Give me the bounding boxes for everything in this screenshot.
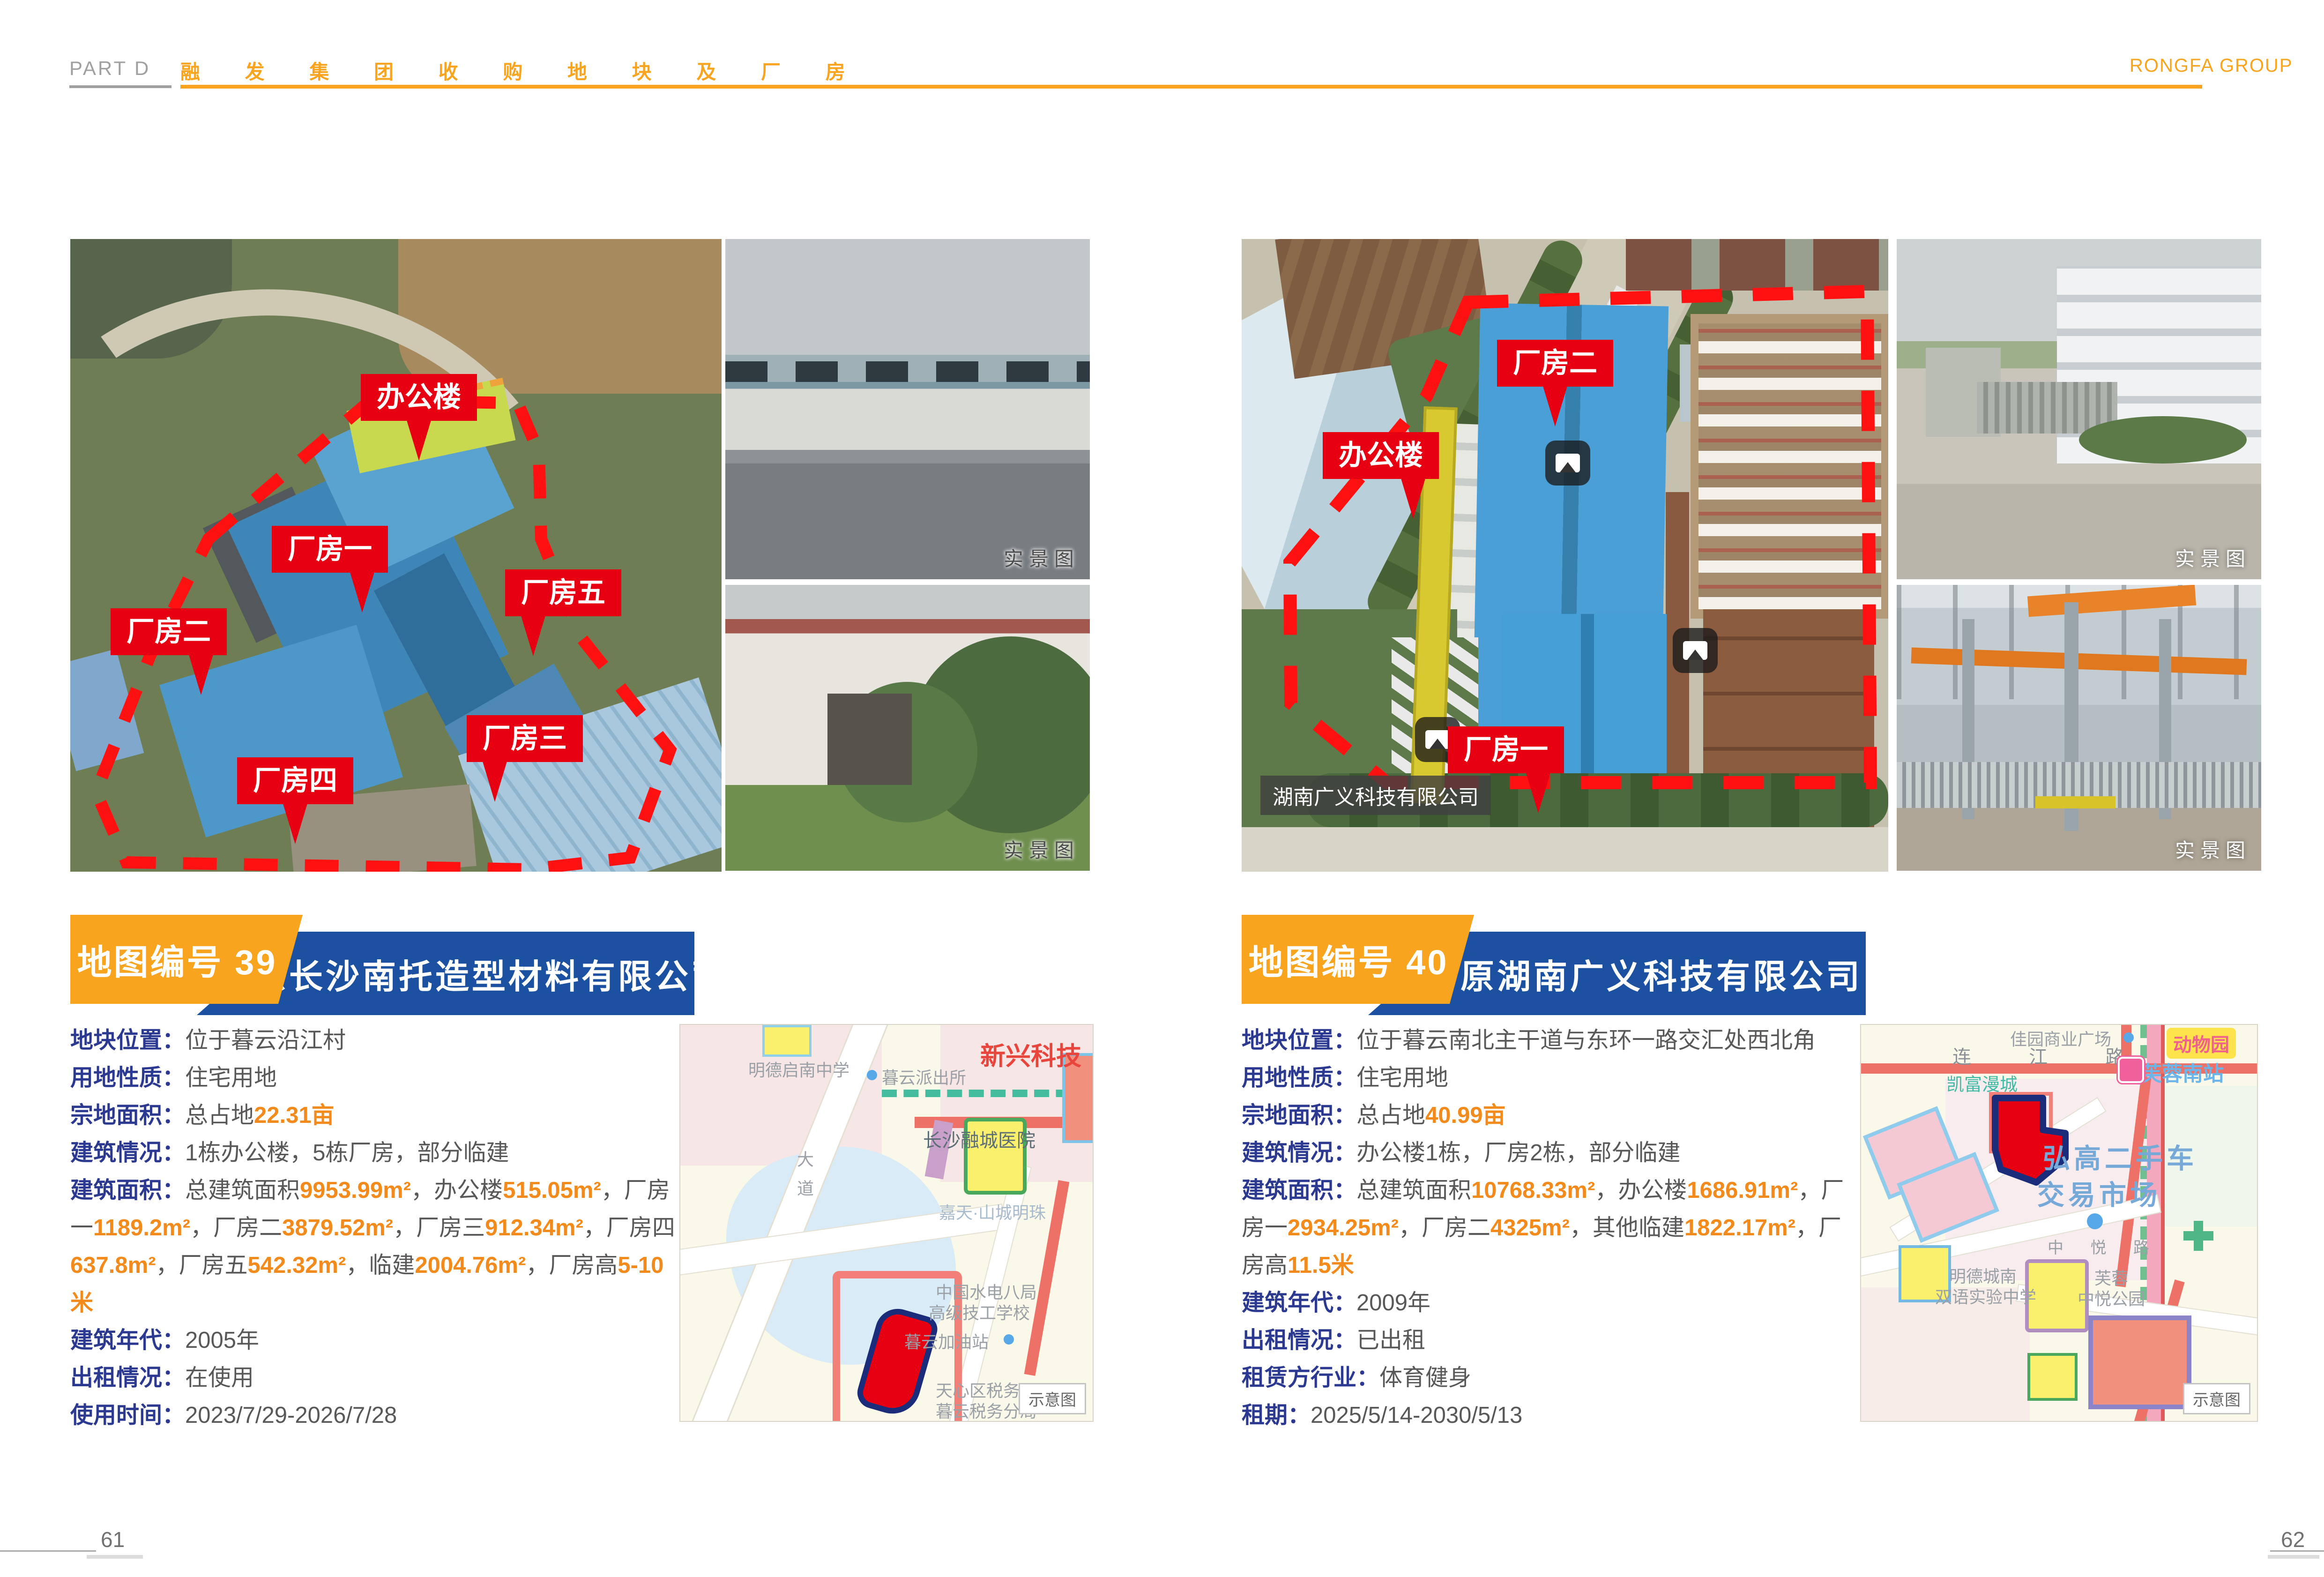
window-strip [725, 361, 1090, 382]
location-minimap: 佳园商业广场 连 江 路 动物园 芙蓉南站 凯富漫城 弘高二手车 交易市场 中 … [1860, 1024, 2258, 1422]
footer-line-right [2270, 1550, 2324, 1552]
map-label: 凯富漫城 [1946, 1070, 2018, 1096]
photo-marker-icon [1673, 628, 1718, 673]
map-label: 中悦公园 [2078, 1286, 2145, 1310]
map-green-cross [2183, 1221, 2213, 1251]
poi-dot [867, 1070, 877, 1080]
red-dashed-boundary [70, 239, 722, 872]
poi-dot [1004, 1334, 1014, 1345]
detail-row: 建筑情况：1栋办公楼，5栋厂房，部分临建 [70, 1134, 679, 1172]
detail-row: 建筑情况：办公楼1栋，厂房2栋，部分临建 [1242, 1134, 1851, 1172]
detail-row: 地块位置：位于暮云沿江村 [70, 1022, 679, 1059]
building-label-factory5: 厂房五 [505, 569, 621, 616]
map-yellow-parcel [2027, 1353, 2078, 1401]
map-label: 嘉天·山城明珠 [939, 1199, 1046, 1224]
map-label: 弘高二手车 [2043, 1136, 2197, 1176]
door-opening [827, 694, 912, 785]
poi-badge-zoo: 动物园 [2167, 1028, 2236, 1059]
site-photo-factory-exterior: 实景图 [725, 239, 1090, 579]
detail-row: 出租情况：在使用 [70, 1359, 679, 1397]
aerial-photo-39: 办公楼 厂房一 厂房五 厂房二 厂房三 厂房四 [70, 239, 722, 872]
map-salmon-parcel [2088, 1315, 2191, 1409]
map-label: 明德启南中学 [748, 1057, 849, 1081]
detail-row: 用地性质：住宅用地 [70, 1059, 679, 1097]
photo-badge: 实景图 [1004, 543, 1080, 572]
poi-dot [2123, 1032, 2134, 1043]
photo-marker-icon [1545, 441, 1590, 486]
map-label: 暮云派出所 [882, 1064, 966, 1089]
detail-row: 租期：2025/5/14-2030/5/13 [1242, 1397, 1851, 1434]
site-photo-office-exterior: 实景图 [725, 585, 1090, 871]
minimap-badge: 示意图 [2183, 1383, 2250, 1414]
detail-row: 用地性质：住宅用地 [1242, 1059, 1851, 1097]
site-photo-office-building: 实景图 [1897, 239, 2261, 579]
building-label-factory4: 厂房四 [237, 757, 353, 804]
plot-details: 地块位置：位于暮云南北主干道与东环一路交汇处西北角 用地性质：住宅用地 宗地面积… [1242, 1022, 1851, 1434]
building-label-factory1: 厂房一 [1448, 726, 1564, 773]
yellow-lifter [2035, 796, 2115, 808]
map-label: 中 悦 路 [2048, 1235, 2160, 1258]
poi-dot [2087, 1213, 2103, 1229]
photo-badge: 实景图 [2175, 835, 2251, 863]
minimap-badge: 示意图 [1019, 1383, 1086, 1414]
aerial-photo-40: 厂房二 办公楼 厂房一 湖南广义科技有限公司 [1242, 239, 1888, 872]
footer-watermark [87, 1555, 143, 1559]
detail-row: 租赁方行业：体育健身 [1242, 1359, 1851, 1397]
building-label-office: 办公楼 [361, 374, 477, 421]
map-label: 高级技工学校 [929, 1300, 1030, 1324]
map-yellow-parcel [762, 1025, 812, 1057]
map-label: 交易市场 [2037, 1173, 2161, 1212]
detail-row: 建筑年代：2009年 [1242, 1284, 1851, 1322]
building-label-office: 办公楼 [1323, 432, 1439, 479]
map-label: 新兴科技 [980, 1035, 1081, 1072]
location-minimap: 明德启南中学 暮云派出所 新兴科技 长沙融城医院 嘉天·山城明珠 中国水电八局 … [679, 1024, 1094, 1422]
plot-details: 地块位置：位于暮云沿江村 用地性质：住宅用地 宗地面积：总占地22.31亩 建筑… [70, 1022, 679, 1434]
footer-line-left [0, 1550, 96, 1552]
map-road-name: 大道 [792, 1151, 816, 1209]
section-plot-40: 厂房二 办公楼 厂房一 湖南广义科技有限公司 实景图 实景图 地图编号 40 原… [1171, 0, 2324, 1577]
site-photo-factory-interior: 实景图 [1897, 585, 2261, 871]
detail-row: 使用时间：2023/7/29-2026/7/28 [70, 1397, 679, 1434]
photo-badge: 实景图 [1004, 835, 1080, 863]
map-label: 暮云加油站 [904, 1329, 989, 1353]
photo-badge: 实景图 [2175, 543, 2251, 572]
map-label: 双语实验中学 [1935, 1284, 2036, 1308]
detail-row: 地块位置：位于暮云南北主干道与东环一路交汇处西北角 [1242, 1022, 1851, 1059]
detail-row: 建筑面积：总建筑面积9953.99m²，办公楼515.05m²，厂房一1189.… [70, 1172, 679, 1322]
poi-badge-station: 芙蓉南站 [2141, 1057, 2224, 1087]
building-label-factory2: 厂房二 [1497, 340, 1613, 387]
company-tag-overlay: 湖南广义科技有限公司 [1260, 776, 1491, 815]
map-transit-dashes [882, 1090, 1093, 1097]
slide-page: PART D 融 发 集 团 收 购 地 块 及 厂 房 RONGFA GROU… [0, 0, 2324, 1577]
map-label: 长沙融城医院 [923, 1125, 1035, 1152]
building-label-factory3: 厂房三 [467, 715, 583, 762]
building-label-factory1: 厂房一 [272, 526, 388, 573]
page-number-right: 62 [2281, 1527, 2305, 1552]
map-number-badge: 地图编号 40 [1242, 915, 1474, 1004]
detail-row: 宗地面积：总占地40.99亩 [1242, 1097, 1851, 1134]
detail-row: 出租情况：已出租 [1242, 1322, 1851, 1359]
detail-row: 宗地面积：总占地22.31亩 [70, 1097, 679, 1134]
detail-row: 建筑年代：2005年 [70, 1322, 679, 1359]
train-icon [2118, 1057, 2144, 1083]
map-number-badge: 地图编号 39 [70, 915, 303, 1004]
section-plot-39: 办公楼 厂房一 厂房五 厂房二 厂房三 厂房四 实景图 实景图 地图编号 39 … [0, 0, 1162, 1577]
shrub-bed [2079, 416, 2247, 464]
footer-watermark [2268, 1555, 2319, 1559]
building-label-factory2: 厂房二 [111, 608, 227, 655]
detail-row: 建筑面积：总建筑面积10768.33m²，办公楼1686.91m²，厂房一293… [1242, 1172, 1851, 1284]
page-number-left: 61 [101, 1527, 125, 1552]
